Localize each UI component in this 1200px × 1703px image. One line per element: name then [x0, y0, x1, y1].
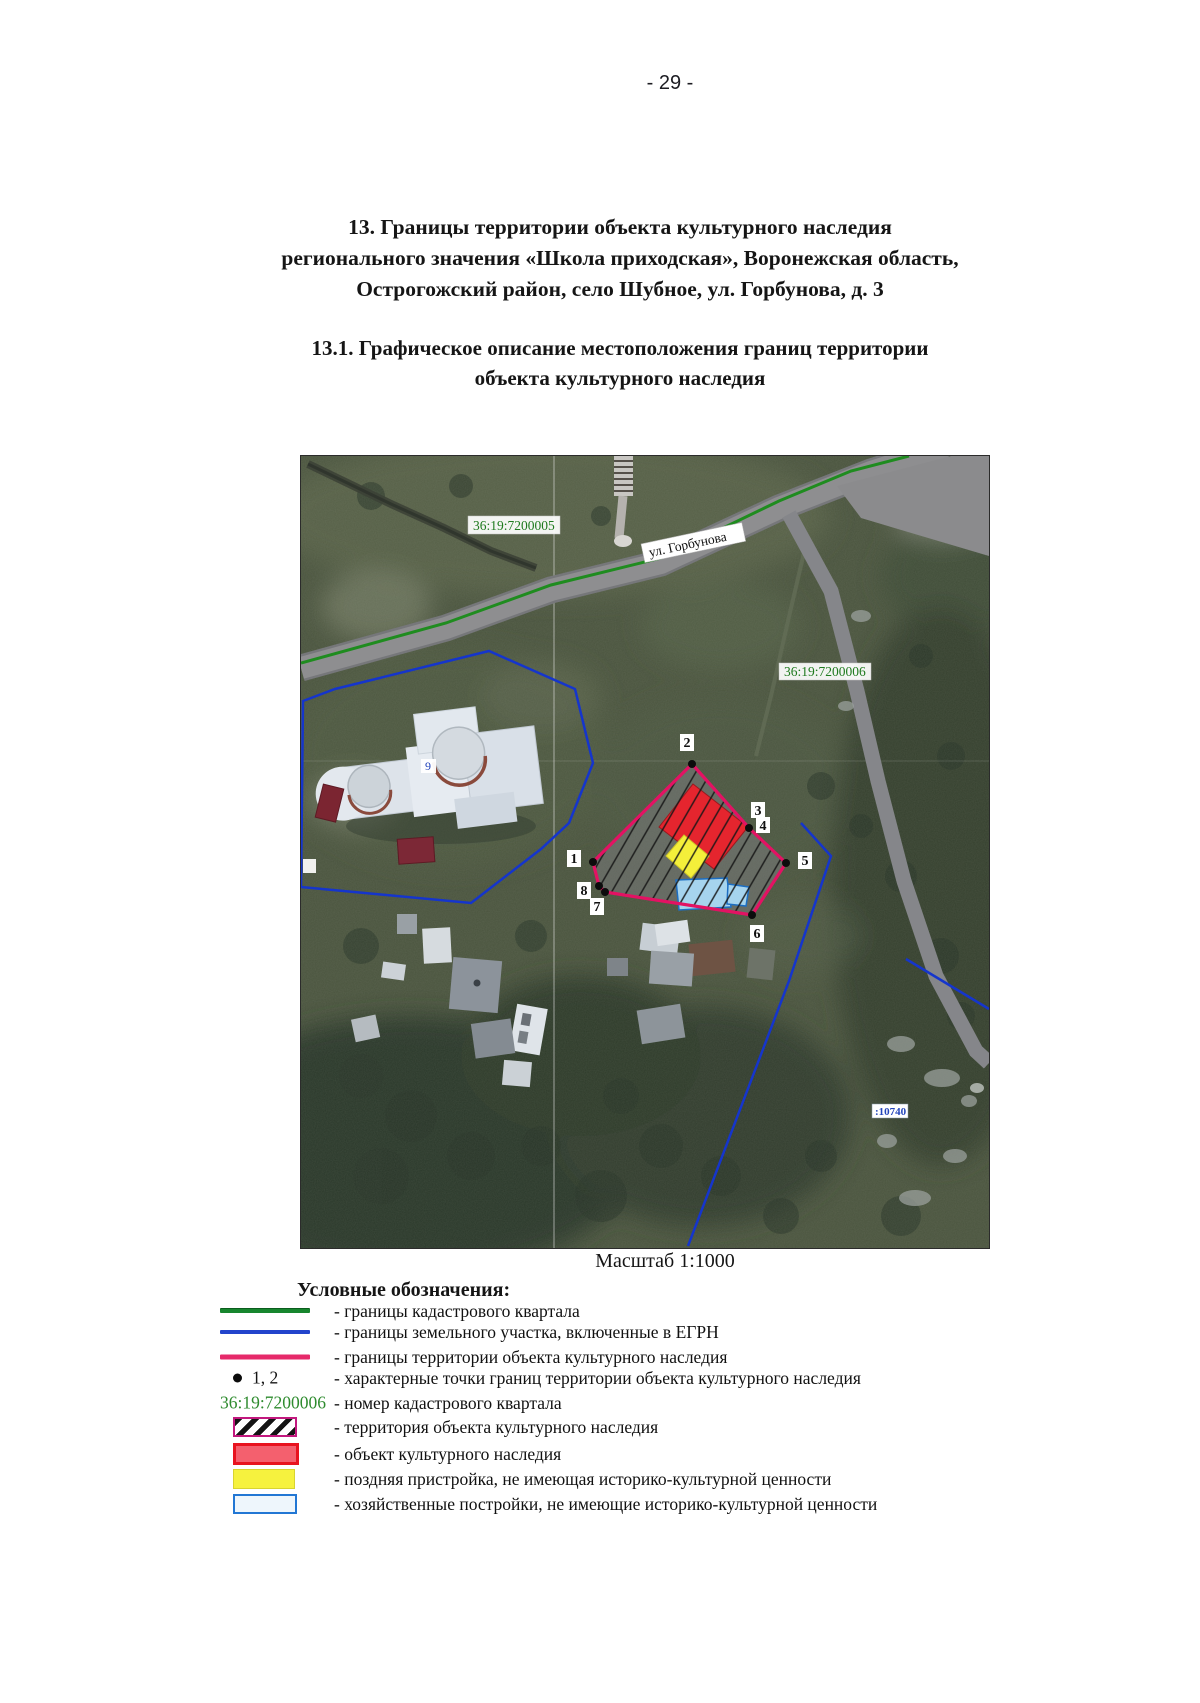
point-label-1: 1	[571, 852, 578, 867]
church-number-label: 9	[421, 759, 436, 773]
point-dot-swatch	[233, 1374, 242, 1383]
page-number: - 29 -	[610, 72, 730, 95]
section-heading: 13. Границы территории объекта культурно…	[40, 212, 1200, 305]
map-figure: 9	[300, 455, 990, 1249]
legend-row-heritage-boundary: - границы территории объекта культурного…	[180, 1346, 1120, 1368]
yellow-box-swatch	[233, 1469, 295, 1489]
legend-label: - хозяйственные постройки, не имеющие ис…	[334, 1494, 1120, 1515]
subsection-heading: 13.1. Графическое описание местоположени…	[40, 333, 1200, 393]
legend-row-outbuildings: - хозяйственные постройки, не имеющие ис…	[180, 1492, 1120, 1516]
legend-row-cadastral-quarter: - границы кадастрового квартала	[180, 1300, 1120, 1322]
blue-line-swatch	[220, 1330, 310, 1334]
svg-text:36:19:7200005: 36:19:7200005	[473, 518, 555, 533]
section-heading-line2: регионального значения «Школа приходская…	[40, 243, 1200, 274]
svg-text:36:19:7200006: 36:19:7200006	[784, 664, 866, 679]
legend-title: Условные обозначения:	[297, 1279, 510, 1302]
svg-text:9: 9	[425, 759, 431, 773]
legend-row-cadastral-number: 36:19:7200006 - номер кадастрового кварт…	[180, 1392, 1120, 1414]
map-scale-caption: Масштаб 1:1000	[515, 1250, 815, 1273]
point-label-7: 7	[594, 900, 601, 915]
legend-label: - номер кадастрового квартала	[334, 1393, 1120, 1414]
map-image: 9	[301, 456, 989, 1248]
subsection-heading-line1: 13.1. Графическое описание местоположени…	[40, 333, 1200, 363]
point-label-8: 8	[581, 884, 588, 899]
point-label-4: 4	[760, 819, 767, 834]
cadastral-label-7200006: 36:19:7200006	[779, 663, 871, 680]
legend: - границы кадастрового квартала - границ…	[180, 1300, 1120, 1530]
lightblue-box-swatch	[233, 1494, 297, 1514]
svg-text::10740: :10740	[875, 1106, 907, 1118]
cadastral-label-7200005: 36:19:7200005	[468, 516, 560, 534]
point-sample-text: 1, 2	[252, 1368, 278, 1389]
legend-row-boundary-points: 1, 2 - характерные точки границ территор…	[180, 1367, 1120, 1389]
green-line-swatch	[220, 1309, 310, 1313]
document-page: - 29 - 13. Границы территории объекта ку…	[0, 0, 1200, 1703]
point-label-2: 2	[684, 736, 691, 751]
section-heading-line3: Острогожский район, село Шубное, ул. Гор…	[40, 274, 1200, 305]
hatch-box-swatch	[233, 1417, 297, 1437]
legend-row-heritage-object: - объект культурного наследия	[180, 1442, 1120, 1466]
legend-row-heritage-territory: - территория объекта культурного наследи…	[180, 1415, 1120, 1439]
subsection-heading-line2: объекта культурного наследия	[40, 363, 1200, 393]
point-label-5: 5	[802, 854, 809, 869]
pink-line-swatch	[220, 1355, 310, 1360]
legend-label: - территория объекта культурного наследи…	[334, 1417, 1120, 1438]
legend-label: - границы территории объекта культурного…	[334, 1347, 1120, 1368]
point-label-6: 6	[754, 927, 761, 942]
legend-label: - характерные точки границ территории об…	[334, 1368, 1120, 1389]
legend-label: - поздняя пристройка, не имеющая историк…	[334, 1469, 1120, 1490]
legend-label: - границы земельного участка, включенные…	[334, 1322, 1120, 1343]
section-heading-line1: 13. Границы территории объекта культурно…	[40, 212, 1200, 243]
legend-label: - границы кадастрового квартала	[334, 1301, 1120, 1322]
red-box-swatch	[233, 1443, 299, 1465]
cadastral-number-sample: 36:19:7200006	[180, 1393, 326, 1414]
parcel-label-10740: :10740	[872, 1104, 908, 1118]
point-label-3: 3	[755, 804, 762, 819]
legend-label: - объект культурного наследия	[334, 1444, 1120, 1465]
legend-row-late-annex: - поздняя пристройка, не имеющая историк…	[180, 1467, 1120, 1491]
legend-row-parcel-boundary: - границы земельного участка, включенные…	[180, 1321, 1120, 1343]
